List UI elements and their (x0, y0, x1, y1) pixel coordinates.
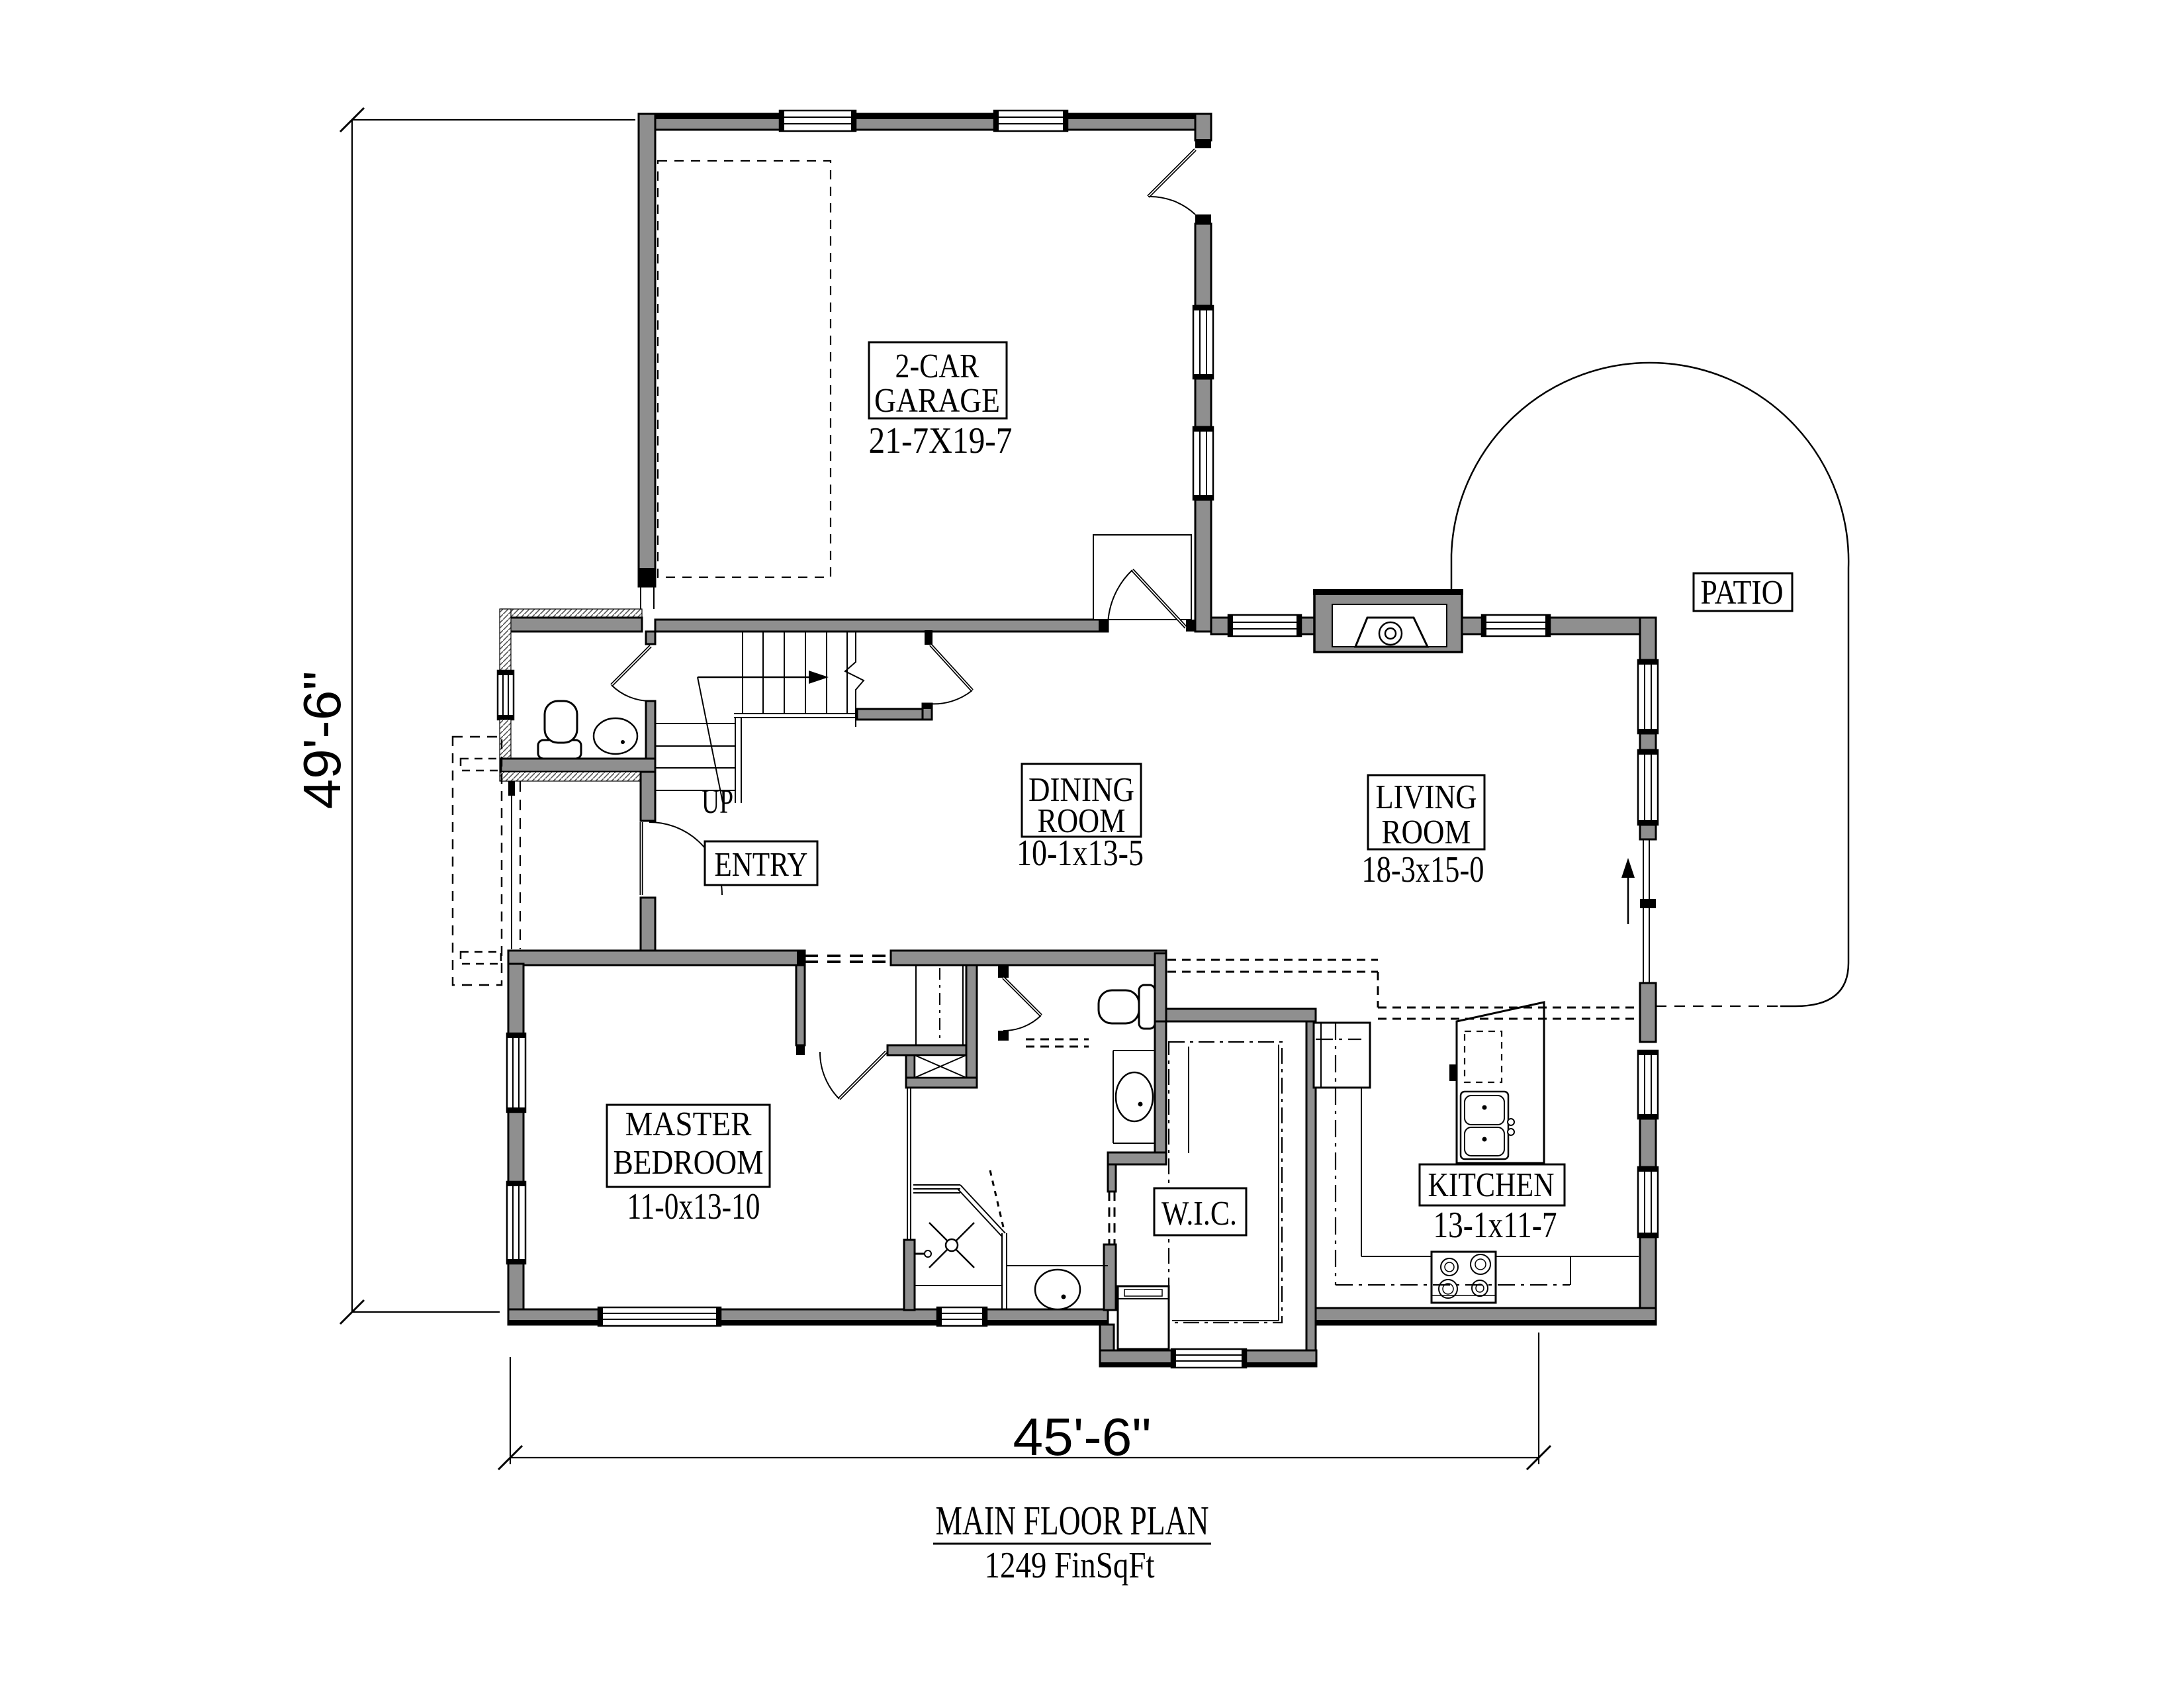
svg-text:10-1x13-5: 10-1x13-5 (1017, 833, 1144, 874)
svg-text:11-0x13-10: 11-0x13-10 (627, 1186, 760, 1227)
svg-text:ROOM: ROOM (1382, 814, 1471, 851)
svg-text:49'-6": 49'-6" (293, 671, 351, 810)
svg-text:2-CAR: 2-CAR (895, 348, 979, 385)
svg-text:13-1x11-7: 13-1x11-7 (1433, 1205, 1557, 1246)
svg-text:BEDROOM: BEDROOM (614, 1144, 764, 1182)
svg-text:UP: UP (702, 783, 733, 821)
svg-text:45'-6": 45'-6" (1013, 1407, 1152, 1466)
svg-text:GARAGE: GARAGE (874, 382, 1000, 420)
svg-text:18-3x15-0: 18-3x15-0 (1362, 849, 1484, 890)
svg-text:PATIO: PATIO (1701, 574, 1784, 612)
svg-text:MASTER: MASTER (625, 1105, 752, 1143)
svg-text:21-7X19-7: 21-7X19-7 (869, 420, 1013, 461)
svg-text:KITCHEN: KITCHEN (1428, 1166, 1555, 1204)
svg-text:1249 FinSqFt: 1249 FinSqFt (985, 1545, 1155, 1586)
svg-text:MAIN FLOOR PLAN: MAIN FLOOR PLAN (936, 1499, 1209, 1544)
svg-text:LIVING: LIVING (1376, 778, 1477, 816)
svg-text:W.I.C.: W.I.C. (1161, 1195, 1237, 1233)
svg-text:ENTRY: ENTRY (715, 846, 808, 884)
